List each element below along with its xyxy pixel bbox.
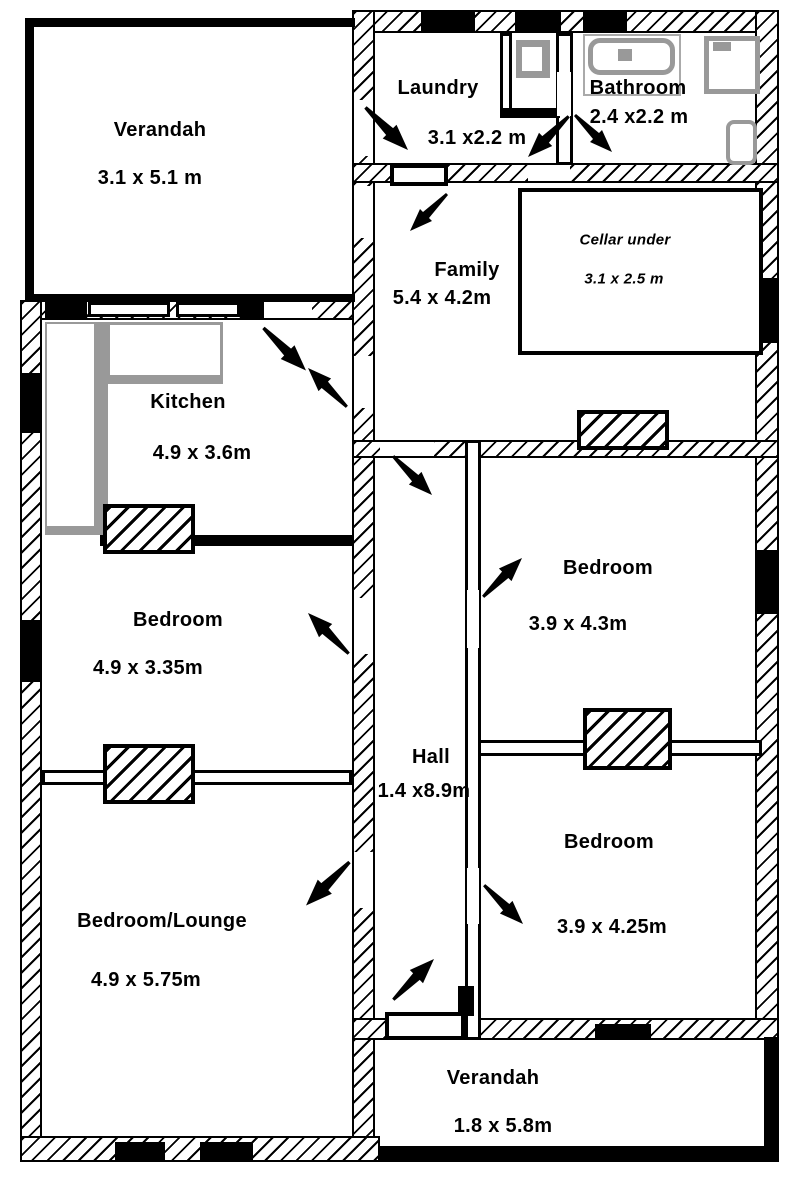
window <box>515 12 561 31</box>
verandah-top-wall <box>25 18 355 27</box>
door-swing-icon <box>306 858 353 906</box>
door-opening <box>354 356 373 408</box>
room-name-laundry: Laundry <box>398 78 479 98</box>
door-opening <box>557 72 571 116</box>
room-name-bedroom-right-top: Bedroom <box>563 558 653 578</box>
room-dims-verandah-bottom: 1.8 x 5.8m <box>454 1116 553 1136</box>
chimney-icon <box>103 744 195 804</box>
wall-chunk <box>45 300 87 320</box>
window <box>115 1142 165 1160</box>
window <box>200 1142 253 1160</box>
room-dims-bedroom-right-top: 3.9 x 4.3m <box>529 614 628 634</box>
step <box>390 164 448 186</box>
window <box>20 373 42 433</box>
wall-chunk <box>240 302 264 320</box>
floor-plan: Verandah 3.1 x 5.1 m Laundry 3.1 x2.2 m … <box>0 0 800 1181</box>
room-name-bathroom: Bathroom <box>590 78 687 98</box>
step <box>385 1012 465 1040</box>
room-dims-kitchen: 4.9 x 3.6m <box>153 443 252 463</box>
room-name-kitchen: Kitchen <box>150 392 225 412</box>
room-dims-cellar: 3.1 x 2.5 m <box>584 272 663 287</box>
wall-top <box>352 10 778 33</box>
room-name-bedroom-right-bottom: Bedroom <box>564 832 654 852</box>
room-dims-bedroom-right-bottom: 3.9 x 4.25m <box>557 917 667 937</box>
door-swing-icon <box>260 320 306 375</box>
room-dims-bathroom: 2.4 x2.2 m <box>590 107 689 127</box>
window <box>755 550 779 614</box>
verandah-left-wall <box>25 18 34 300</box>
room-name-bedroom-left: Bedroom <box>133 610 223 630</box>
room-dims-verandah-top: 3.1 x 5.1 m <box>98 168 202 188</box>
room-dims-laundry: 3.1 x2.2 m <box>428 128 527 148</box>
verandah2-right-wall <box>764 1037 779 1162</box>
window <box>595 1024 651 1040</box>
room-dims-bedroom-left: 4.9 x 3.35m <box>93 658 203 678</box>
door-swing-icon <box>390 448 432 500</box>
wall-laundry-alcove <box>500 33 512 113</box>
room-name-family: Family <box>434 260 499 280</box>
toilet-icon <box>726 120 757 165</box>
door-swing-icon <box>306 368 352 410</box>
door-swing-icon <box>478 558 524 600</box>
chimney-icon <box>583 708 672 770</box>
door-opening <box>354 186 373 238</box>
door-opening <box>354 598 373 654</box>
door-opening <box>264 302 312 318</box>
chimney-icon <box>577 410 669 450</box>
door-opening <box>528 165 570 181</box>
room-name-verandah-bottom: Verandah <box>447 1068 539 1088</box>
room-dims-family: 5.4 x 4.2m <box>393 288 492 308</box>
door-swing-icon <box>528 112 572 158</box>
room-name-verandah-top: Verandah <box>114 120 206 140</box>
door-opening <box>354 852 373 908</box>
window <box>20 620 42 682</box>
room-dims-hall: 1.4 x8.9m <box>378 781 471 801</box>
door-swing-icon <box>390 952 434 1010</box>
kitchen-bench-top <box>107 322 223 384</box>
window-frame <box>176 302 240 317</box>
window <box>583 12 627 31</box>
room-dims-bedroom-lounge: 4.9 x 5.75m <box>91 970 201 990</box>
door-swing-icon <box>410 188 450 234</box>
wall-bedroom-left-bottom <box>42 770 352 785</box>
window-frame <box>88 302 170 317</box>
room-name-cellar: Cellar under <box>579 233 670 248</box>
door-swing-icon <box>480 882 524 924</box>
door-opening <box>467 868 479 924</box>
verandah2-bottom-wall <box>378 1146 779 1162</box>
chimney-icon <box>103 504 195 554</box>
room-name-bedroom-lounge: Bedroom/Lounge <box>77 911 247 931</box>
laundry-trough-basin <box>522 47 542 71</box>
bathtub-drain <box>618 49 632 61</box>
room-name-hall: Hall <box>412 747 450 767</box>
wall-hall-right <box>465 440 481 1040</box>
window <box>421 12 475 31</box>
door-swing-icon <box>362 104 408 150</box>
kitchen-counter-left <box>45 322 108 535</box>
door-swing-icon <box>308 612 352 658</box>
shower-head <box>713 42 731 51</box>
